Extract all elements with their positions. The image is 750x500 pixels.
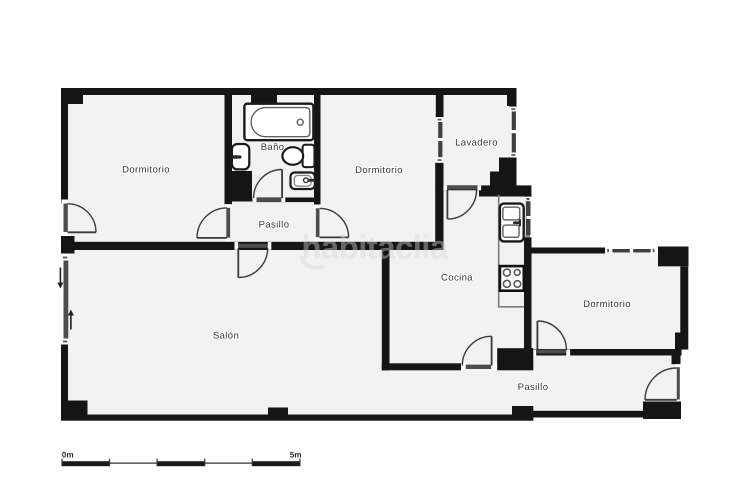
svg-text:Dormitorio: Dormitorio bbox=[355, 165, 403, 176]
svg-text:0m: 0m bbox=[62, 451, 74, 460]
svg-text:Pasillo: Pasillo bbox=[259, 220, 290, 231]
svg-text:Lavadero: Lavadero bbox=[455, 138, 498, 149]
svg-text:Cocina: Cocina bbox=[441, 273, 473, 284]
svg-text:Dormitorio: Dormitorio bbox=[583, 299, 631, 310]
svg-text:Salón: Salón bbox=[213, 331, 239, 342]
svg-text:5m: 5m bbox=[290, 451, 302, 460]
svg-text:Pasillo: Pasillo bbox=[518, 382, 549, 393]
svg-text:habitaclia: habitaclia bbox=[301, 229, 448, 266]
svg-text:Dormitorio: Dormitorio bbox=[122, 165, 170, 176]
svg-text:Baño: Baño bbox=[261, 142, 285, 153]
